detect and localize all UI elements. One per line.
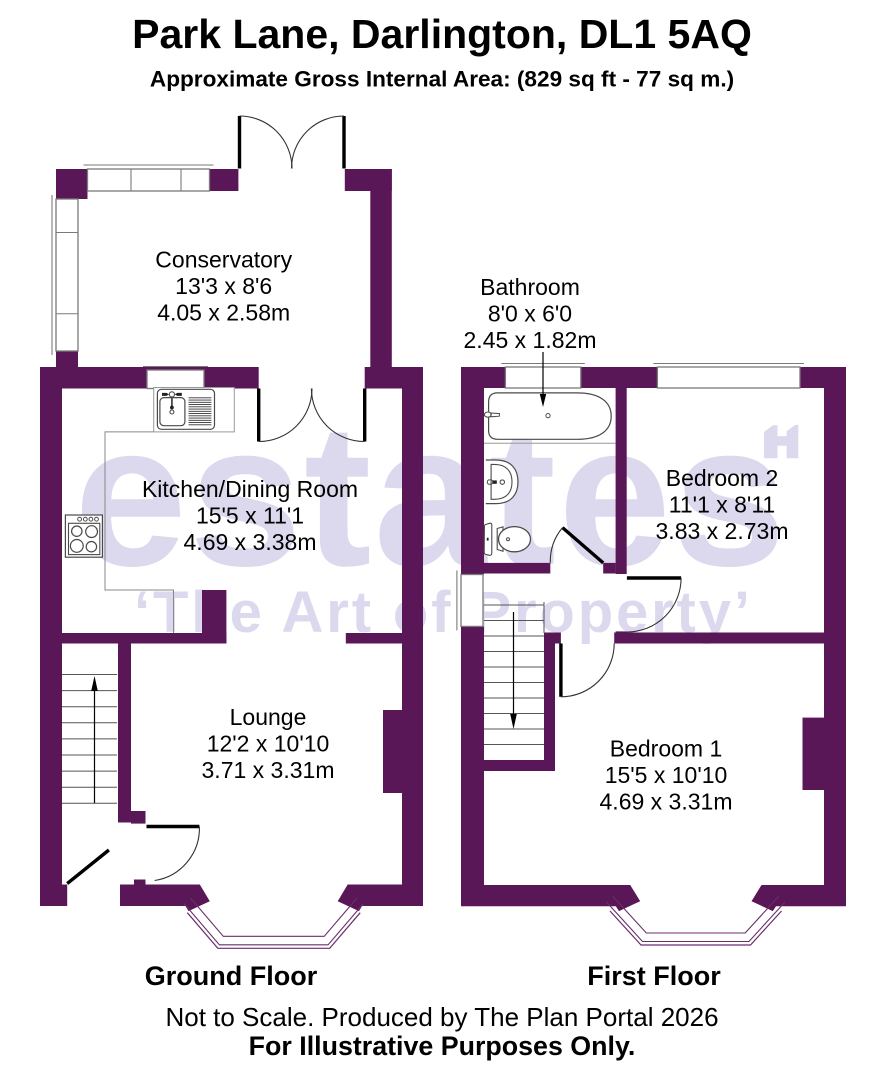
svg-text:Conservatory: Conservatory (155, 247, 292, 273)
svg-text:Ground Floor: Ground Floor (145, 961, 318, 991)
svg-text:Kitchen/Dining Room: Kitchen/Dining Room (142, 476, 358, 502)
svg-text:4.69 x 3.31m: 4.69 x 3.31m (600, 789, 733, 815)
svg-text:8'0 x 6'0: 8'0 x 6'0 (488, 301, 572, 327)
svg-text:Bedroom 1: Bedroom 1 (610, 736, 723, 762)
svg-text:Bedroom 2: Bedroom 2 (666, 465, 779, 491)
svg-text:2.45 x 1.82m: 2.45 x 1.82m (464, 327, 597, 353)
svg-text:4.69 x 3.38m: 4.69 x 3.38m (184, 529, 317, 555)
svg-text:11'1 x 8'11: 11'1 x 8'11 (669, 492, 775, 518)
svg-text:3.71 x 3.31m: 3.71 x 3.31m (202, 757, 335, 783)
svg-text:15'5 x 10'10: 15'5 x 10'10 (605, 762, 728, 788)
svg-text:Approximate Gross Internal Are: Approximate Gross Internal Area: (829 sq… (150, 67, 734, 92)
svg-text:13'3 x 8'6: 13'3 x 8'6 (175, 273, 272, 299)
svg-text:Park Lane, Darlington, DL1 5AQ: Park Lane, Darlington, DL1 5AQ (132, 11, 752, 57)
svg-text:Bathroom: Bathroom (480, 274, 580, 300)
svg-text:Not to Scale. Produced by The: Not to Scale. Produced by The Plan Porta… (165, 1002, 718, 1032)
svg-text:4.05 x 2.58m: 4.05 x 2.58m (157, 300, 290, 326)
svg-text:15'5 x 11'1: 15'5 x 11'1 (196, 503, 304, 529)
svg-text:First Floor: First Floor (587, 961, 721, 991)
svg-text:For Illustrative Purposes Only: For Illustrative Purposes Only. (249, 1031, 636, 1061)
svg-text:3.83 x 2.73m: 3.83 x 2.73m (656, 518, 789, 544)
svg-text:12'2 x 10'10: 12'2 x 10'10 (207, 731, 330, 757)
svg-text:Lounge: Lounge (230, 704, 307, 730)
